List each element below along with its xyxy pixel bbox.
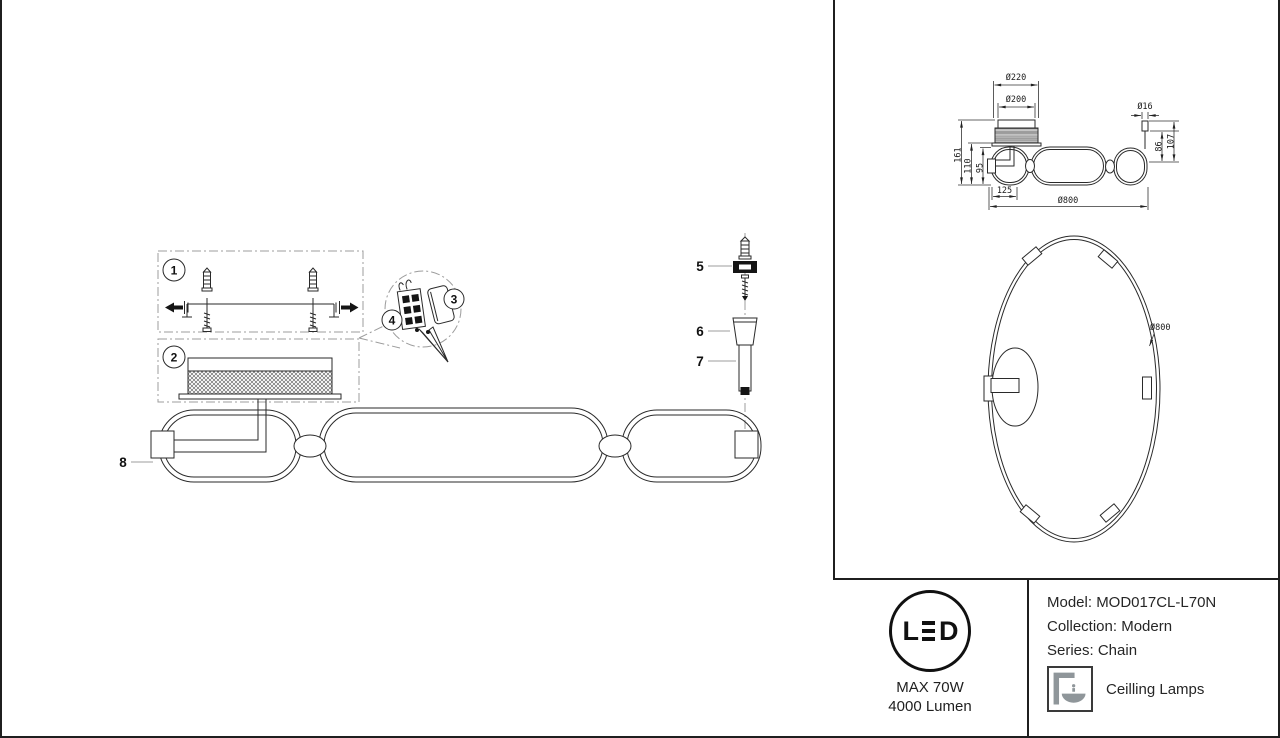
canopy-front-view xyxy=(179,358,341,399)
step1-box: 1 xyxy=(158,251,363,332)
screw-icon xyxy=(742,275,749,301)
plan-view-drawing: Ø800 xyxy=(984,236,1170,542)
ring-connector xyxy=(1022,247,1042,265)
dim-dia200: Ø200 xyxy=(1006,94,1026,105)
collection-row: Collection: Modern xyxy=(1047,618,1280,635)
step1-number: 1 xyxy=(171,264,178,278)
part7-label: 7 xyxy=(696,354,704,369)
category-label: Ceilling Lamps xyxy=(1106,681,1204,698)
model-row: Model: MOD017CL-L70N xyxy=(1047,594,1280,611)
chain-clip-right xyxy=(735,431,758,458)
side-screw-arrow-left xyxy=(165,301,188,314)
wall-anchor-icon xyxy=(202,268,212,291)
led-logo-letter-d: D xyxy=(939,618,958,645)
dim-dia800-plan: Ø800 xyxy=(1150,322,1170,333)
step2-box: 2 xyxy=(158,339,359,402)
suspension-parts: 5 6 7 xyxy=(696,233,757,430)
side-view-drawing: Ø220 Ø200 Ø16 86 107 161 xyxy=(954,72,1180,210)
info-panel: L D MAX 70W 4000 Lumen Model: MOD017CL-L… xyxy=(833,578,1280,736)
ceiling-plate xyxy=(733,261,757,273)
led-logo-letter-e xyxy=(922,621,935,642)
mounting-bracket xyxy=(182,298,339,317)
ring-connector xyxy=(1020,505,1040,523)
wall-anchor-icon xyxy=(739,237,751,259)
spec-sheet: 1 xyxy=(0,0,1280,738)
luminous-flux: 4000 Lumen xyxy=(888,697,971,716)
part5-label: 5 xyxy=(696,259,704,274)
step3-number: 3 xyxy=(451,293,458,307)
category-row: Ceilling Lamps xyxy=(1047,666,1280,712)
part8-label: 8 xyxy=(119,455,127,470)
ring-clip-right xyxy=(1143,377,1152,399)
series-row: Series: Chain xyxy=(1047,642,1280,659)
screw-icon xyxy=(309,310,317,332)
ring-connector xyxy=(1098,250,1118,268)
dim-95: 95 xyxy=(976,163,986,173)
installation-diagram: 1 xyxy=(119,233,761,482)
arm-plan xyxy=(991,379,1019,393)
terminal-callout: 3 4 xyxy=(359,271,464,362)
part6-label: 6 xyxy=(696,324,704,339)
spec-cell: Model: MOD017CL-L70N Collection: Modern … xyxy=(1027,580,1280,736)
screw-icon xyxy=(203,310,211,332)
led-cell: L D MAX 70W 4000 Lumen xyxy=(833,580,1027,736)
dim-125: 125 xyxy=(997,186,1012,196)
chain-clip-left xyxy=(151,431,174,458)
wall-anchor-icon xyxy=(308,268,318,291)
dim-86: 86 xyxy=(1155,141,1165,151)
screwdriver-icon xyxy=(415,327,448,362)
suspension-rod xyxy=(739,345,751,395)
dim-dia220: Ø220 xyxy=(1006,72,1026,83)
max-power: MAX 70W xyxy=(896,678,964,697)
dim-dia16: Ø16 xyxy=(1137,101,1152,112)
cone-canopy xyxy=(733,318,757,345)
dim-110: 110 xyxy=(964,158,974,173)
dim-dia800-side: Ø800 xyxy=(1058,195,1078,206)
dim-161: 161 xyxy=(954,147,964,162)
step2-number: 2 xyxy=(171,351,178,365)
canopy-stem-arm xyxy=(173,399,266,452)
step4-number: 4 xyxy=(389,314,396,328)
chain-body: 8 xyxy=(119,399,761,482)
side-screw-arrow-right xyxy=(336,301,359,314)
led-logo: L D xyxy=(889,590,971,672)
ceiling-lamp-icon xyxy=(1047,666,1093,712)
dim-107: 107 xyxy=(1167,134,1177,149)
ring-connector xyxy=(1100,504,1120,522)
led-logo-letter-l: L xyxy=(903,618,919,645)
